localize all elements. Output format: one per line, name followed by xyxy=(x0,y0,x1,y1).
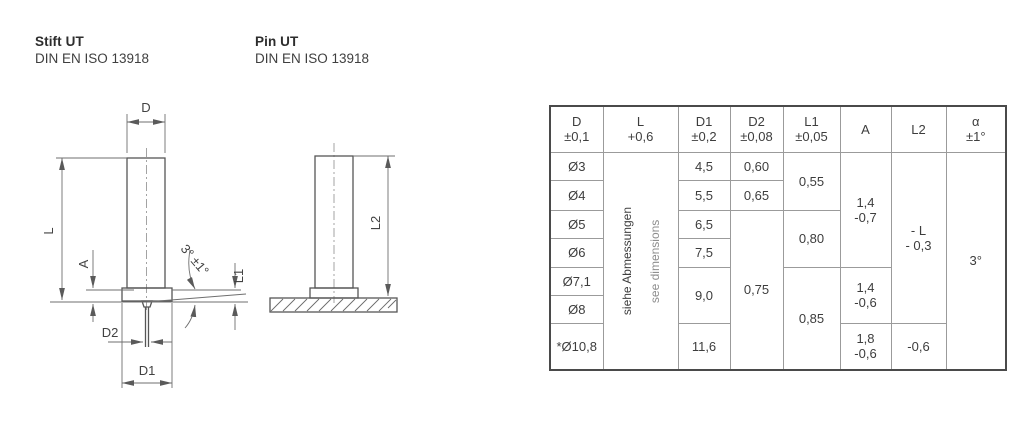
cell-l2: - L - 0,3 xyxy=(891,152,946,323)
cell-d1: 4,5 xyxy=(678,152,730,180)
note-english: see dimensions xyxy=(648,207,662,315)
dim-label-L1: L1 xyxy=(231,269,246,283)
cell-d: *Ø10,8 xyxy=(550,323,603,370)
col-header-L1: L1 ±0,05 xyxy=(783,106,840,152)
cell-d: Ø8 xyxy=(550,295,603,323)
note-german: siehe Abmessungen xyxy=(620,207,634,315)
cell-d2: 0,75 xyxy=(730,210,783,370)
col-header-D1: D1 ±0,2 xyxy=(678,106,730,152)
cell-d: Ø5 xyxy=(550,210,603,238)
cell-l2: -0,6 xyxy=(891,323,946,370)
dimensions-table: D ±0,1 L +0,6 D1 ±0,2 D2 ±0,08 L1 ±0,05 … xyxy=(549,105,1007,371)
dim-label-L: L xyxy=(41,227,56,234)
cell-d1: 7,5 xyxy=(678,238,730,267)
cell-d1: 5,5 xyxy=(678,180,730,210)
cell-d: Ø3 xyxy=(550,152,603,180)
cell-l1: 0,55 xyxy=(783,152,840,210)
technical-drawing: D L A 3° ±1° L1 D2 xyxy=(0,0,550,438)
datasheet-page: Stift UT DIN EN ISO 13918 Pin UT DIN EN … xyxy=(0,0,1024,438)
table-header-row: D ±0,1 L +0,6 D1 ±0,2 D2 ±0,08 L1 ±0,05 … xyxy=(550,106,1006,152)
col-header-L2: L2 xyxy=(891,106,946,152)
cell-l1: 0,80 xyxy=(783,210,840,267)
cell-d: Ø7,1 xyxy=(550,267,603,295)
flange-angle-line xyxy=(146,294,246,302)
dim-label-angle: 3° ±1° xyxy=(178,241,212,278)
table-row: Ø3 siehe Abmessungen see dimensions 4,5 … xyxy=(550,152,1006,180)
angle-arc-lower xyxy=(185,305,195,328)
cell-a: 1,8 -0,6 xyxy=(840,323,891,370)
cell-d: Ø6 xyxy=(550,238,603,267)
cell-a: 1,4 -0,6 xyxy=(840,267,891,323)
hatching xyxy=(271,299,396,311)
dimensions-table-wrap: D ±0,1 L +0,6 D1 ±0,2 D2 ±0,08 L1 ±0,05 … xyxy=(549,105,1007,371)
cell-d1: 9,0 xyxy=(678,267,730,323)
col-header-D: D ±0,1 xyxy=(550,106,603,152)
col-header-D2: D2 ±0,08 xyxy=(730,106,783,152)
stud-shaft xyxy=(127,158,165,288)
cell-d2: 0,60 xyxy=(730,152,783,180)
welded-stud-view: L2 xyxy=(270,143,397,312)
col-header-A: A xyxy=(840,106,891,152)
cell-d1: 11,6 xyxy=(678,323,730,370)
stud-front-view: D L A 3° ±1° L1 D2 xyxy=(41,100,248,388)
cell-l1: 0,85 xyxy=(783,267,840,370)
dim-label-D: D xyxy=(141,100,150,115)
dim-label-A: A xyxy=(76,259,91,268)
cell-d: Ø4 xyxy=(550,180,603,210)
cell-l-note: siehe Abmessungen see dimensions xyxy=(603,152,678,370)
col-header-alpha: α ±1° xyxy=(946,106,1006,152)
dim-label-L2: L2 xyxy=(368,216,383,230)
cell-alpha: 3° xyxy=(946,152,1006,370)
dim-label-D2: D2 xyxy=(102,325,119,340)
cell-a: 1,4 -0,7 xyxy=(840,152,891,267)
see-dimensions-note: siehe Abmessungen see dimensions xyxy=(606,207,676,315)
cell-d2: 0,65 xyxy=(730,180,783,210)
dim-label-D1: D1 xyxy=(139,363,156,378)
col-header-L: L +0,6 xyxy=(603,106,678,152)
cell-d1: 6,5 xyxy=(678,210,730,238)
